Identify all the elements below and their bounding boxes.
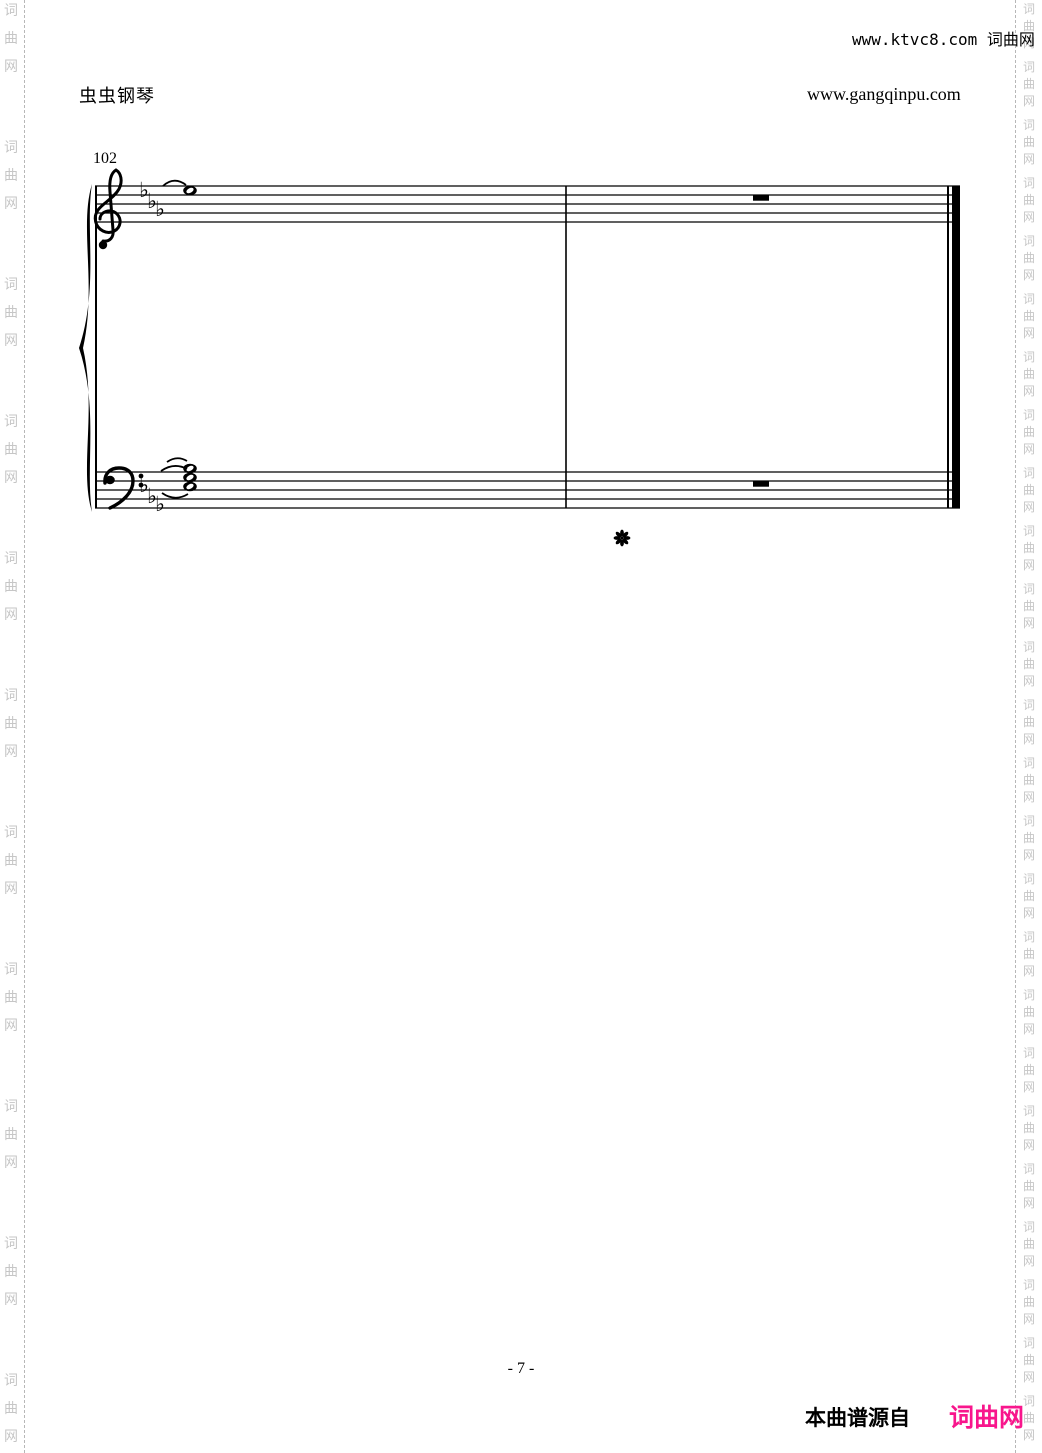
- tie: [163, 181, 186, 186]
- treble-clef-icon: [95, 170, 121, 249]
- footer-source-label: 本曲谱源自: [805, 1402, 910, 1432]
- pedal-release-icon: [614, 530, 631, 547]
- page-number: - 7 -: [0, 1360, 1042, 1378]
- treble-staff-lines: [95, 186, 960, 222]
- tie: [162, 493, 188, 498]
- bass-whole-rest: [753, 482, 769, 487]
- grand-staff-system: 102: [0, 0, 1042, 1453]
- treble-whole-rest: [753, 196, 769, 201]
- barlines: [96, 186, 948, 508]
- footer-source-brand: 词曲网: [949, 1398, 1024, 1434]
- piano-brace: [79, 184, 92, 512]
- bass-key-signature: ♭ ♭ ♭: [139, 473, 165, 516]
- treble-whole-note: [163, 181, 197, 195]
- bass-staff-lines: [95, 472, 960, 508]
- final-barline-thick: [952, 186, 960, 508]
- sheet-music-page: 词曲网词曲网词曲网词曲网词曲网词曲网词曲网词曲网词曲网词曲网词曲网 词曲网词曲网…: [0, 0, 1042, 1453]
- tie: [161, 466, 187, 471]
- tie: [167, 458, 187, 462]
- treble-key-signature: ♭ ♭ ♭: [139, 178, 165, 221]
- bass-whole-note-chord: [161, 458, 197, 498]
- svg-text:♭: ♭: [155, 197, 165, 221]
- svg-text:♭: ♭: [155, 492, 165, 516]
- measure-number: 102: [93, 150, 117, 167]
- bass-clef-icon: [105, 468, 144, 508]
